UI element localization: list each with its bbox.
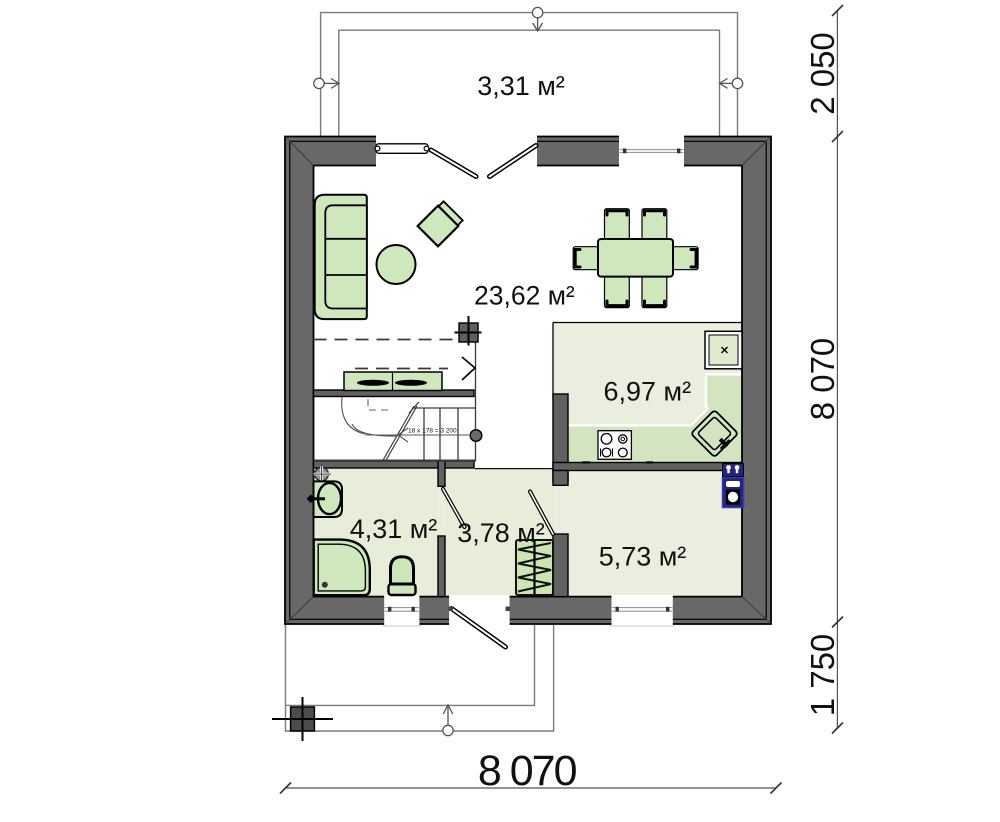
svg-text:23,62 м²: 23,62 м²: [474, 280, 575, 310]
svg-text:5,73 м²: 5,73 м²: [599, 542, 687, 572]
svg-text:2 050: 2 050: [804, 32, 841, 115]
svg-text:6,97 м²: 6,97 м²: [603, 377, 691, 407]
svg-text:3,78 м²: 3,78 м²: [457, 518, 545, 548]
svg-text:8 070: 8 070: [804, 338, 841, 421]
svg-text:4,31 м²: 4,31 м²: [350, 514, 438, 544]
svg-text:3,31 м²: 3,31 м²: [477, 71, 565, 101]
svg-text:18 x 178 = 3 200: 18 x 178 = 3 200: [408, 428, 457, 435]
svg-text:8 070: 8 070: [478, 747, 577, 795]
svg-text:1 750: 1 750: [804, 634, 841, 717]
